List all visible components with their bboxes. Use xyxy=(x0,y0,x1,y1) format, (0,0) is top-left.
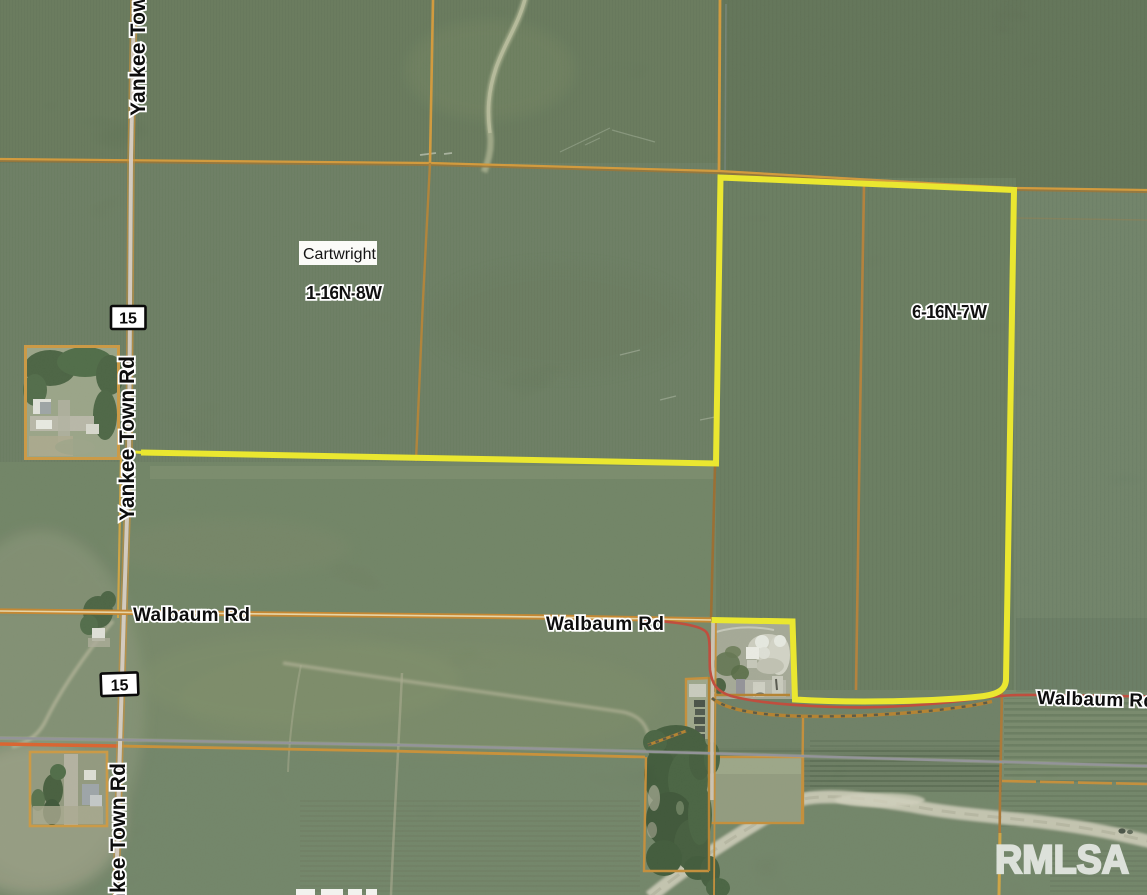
svg-text:Walbaum Rd: Walbaum Rd xyxy=(133,605,250,626)
svg-text:Walbaum Rd: Walbaum Rd xyxy=(546,614,664,635)
svg-text:Cartwright: Cartwright xyxy=(303,246,376,263)
svg-text:15: 15 xyxy=(119,311,137,328)
svg-text:Yankee Town Rd: Yankee Town Rd xyxy=(116,356,139,521)
svg-text:Yankee Town Rd: Yankee Town Rd xyxy=(127,0,150,116)
svg-text:15: 15 xyxy=(110,677,128,695)
svg-text:Walbaum Rd: Walbaum Rd xyxy=(1037,688,1147,712)
svg-text:RMLSA: RMLSA xyxy=(995,838,1129,882)
svg-text:6-16N-7W: 6-16N-7W xyxy=(912,302,987,322)
svg-text:Yankee Town Rd: Yankee Town Rd xyxy=(107,763,130,895)
svg-text:1-16N-8W: 1-16N-8W xyxy=(306,283,382,303)
